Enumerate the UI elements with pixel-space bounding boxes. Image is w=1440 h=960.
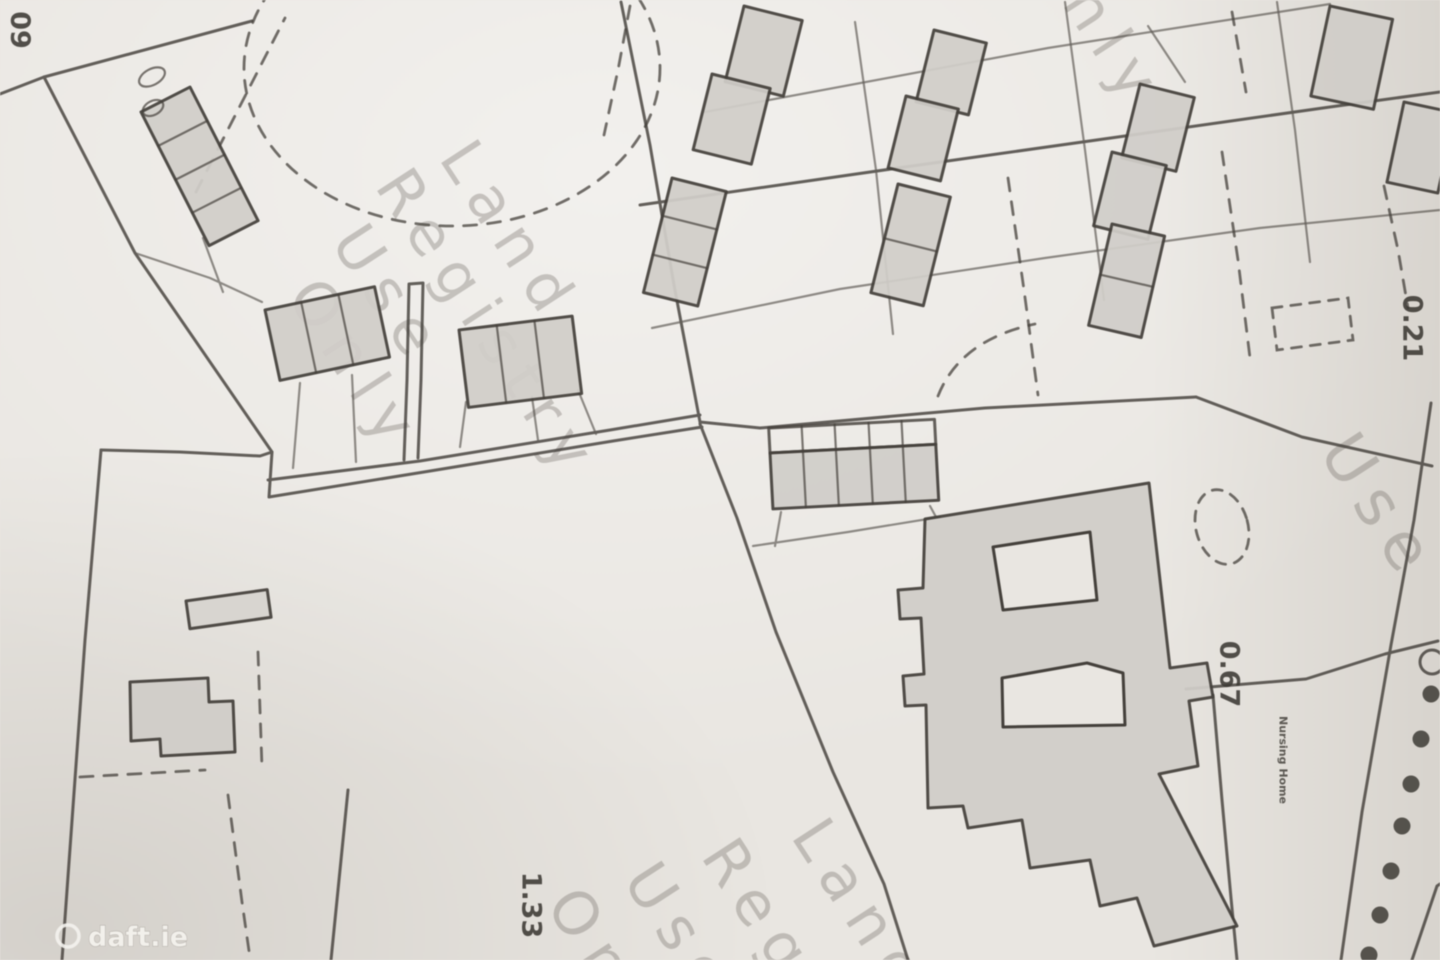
area-label-0-21: 0.21 — [1397, 295, 1428, 362]
area-label-1-33: 1.33 — [516, 872, 547, 939]
area-label-60: 60 — [7, 11, 38, 49]
brand-watermark-text: daft.ie — [88, 922, 188, 953]
building-terrace-left-2 — [459, 316, 582, 407]
map-svg: Land Registry Use Only Land Registry Use… — [0, 0, 1440, 960]
nursing-home-label: Nursing Home — [1277, 716, 1290, 804]
scanned-site-map: Land Registry Use Only Land Registry Use… — [0, 0, 1440, 960]
area-label-0-67: 0.67 — [1214, 641, 1245, 708]
courtyard — [993, 532, 1097, 610]
